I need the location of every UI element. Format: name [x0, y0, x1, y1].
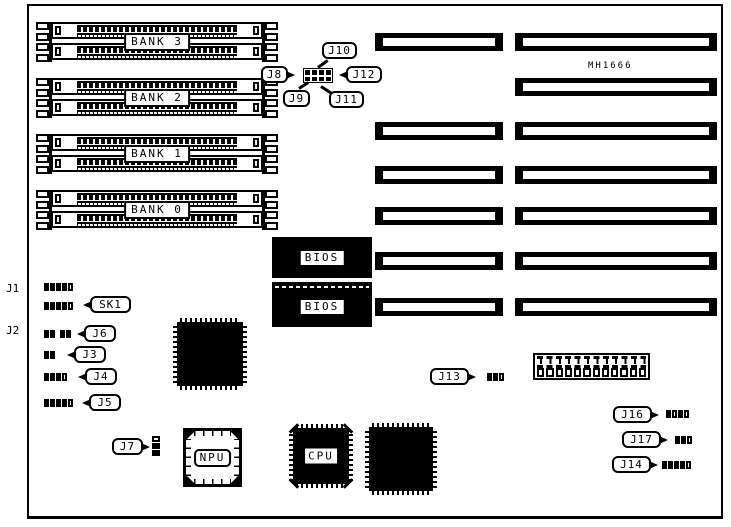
memory-bank-3: BANK 3 — [36, 22, 278, 62]
bank-end-blocks — [36, 22, 49, 62]
callout-j4: J4 — [85, 368, 117, 385]
connector-pin — [546, 368, 553, 377]
pin-jumpered — [44, 302, 49, 310]
decor-mark — [523, 127, 709, 135]
decor-mark — [36, 155, 49, 163]
bank-end-blocks — [265, 22, 278, 62]
connector-pin — [556, 368, 563, 377]
pin-jumpered — [44, 351, 49, 359]
decor-mark — [383, 303, 495, 311]
power-connector — [533, 353, 650, 380]
connector-pin — [611, 368, 618, 377]
decor-mark — [265, 33, 278, 41]
callout-j17: J17 — [622, 431, 661, 448]
connector-pin — [565, 368, 572, 377]
decor-mark — [194, 431, 231, 436]
decor-mark — [296, 484, 346, 488]
decor-mark — [289, 431, 293, 481]
bank-end-blocks — [36, 134, 49, 174]
decor-mark — [383, 38, 495, 46]
connector-pin — [630, 368, 637, 377]
jumper-j6-pins — [44, 330, 55, 338]
decor-mark — [265, 166, 278, 174]
decor-mark — [523, 83, 709, 91]
decor-mark — [36, 201, 49, 209]
edge-label-j1: J1 — [6, 282, 19, 295]
pin-jumpered — [675, 436, 680, 444]
decor-mark — [180, 318, 240, 322]
bios-label: BIOS — [301, 300, 344, 314]
expansion-slot — [375, 298, 503, 316]
jumper-j7-pins — [152, 436, 160, 456]
decor-mark — [77, 56, 237, 58]
pin-jumpered — [50, 373, 55, 381]
pin-jumpered — [152, 443, 160, 449]
jumper-pin-pair — [319, 77, 324, 82]
decor-mark — [265, 211, 278, 219]
expansion-slot — [375, 252, 503, 270]
decor-mark — [194, 479, 231, 484]
decor-mark — [265, 222, 278, 230]
decor-mark — [186, 439, 191, 476]
pin-jumpered — [678, 410, 683, 418]
callout-j7: J7 — [112, 438, 143, 455]
decor-mark — [523, 303, 709, 311]
pin-jumpered — [44, 399, 49, 407]
pin-jumpered — [50, 351, 55, 359]
bios-chip: BIOS — [272, 282, 372, 327]
decor-mark — [265, 89, 278, 97]
cpu-chip: CPU — [293, 428, 349, 484]
pin-jumpered — [50, 283, 55, 291]
expansion-slot — [515, 78, 717, 96]
bios-chip: BIOS — [272, 237, 372, 278]
pin-open — [672, 410, 677, 418]
pin-jumpered — [44, 373, 49, 381]
bank-label: BANK 3 — [124, 33, 190, 51]
pin-jumpered — [62, 302, 67, 310]
pin-jumpered — [680, 461, 685, 469]
asic-chip — [177, 322, 243, 386]
decor-mark — [523, 212, 709, 220]
decor-mark — [36, 110, 49, 118]
asic-chip — [369, 427, 433, 491]
decor-mark — [433, 430, 437, 488]
callout-j3: J3 — [74, 346, 106, 363]
expansion-slot — [375, 166, 503, 184]
jumper-sk1-pins — [44, 302, 73, 310]
decor-mark — [296, 424, 346, 428]
expansion-slot — [375, 33, 503, 51]
decor-mark — [180, 386, 240, 390]
jumper-pin-pair — [319, 70, 324, 75]
decor-mark — [173, 325, 177, 383]
pin-jumpered — [50, 302, 55, 310]
pin-jumpered — [62, 399, 67, 407]
decor-mark — [36, 22, 49, 30]
decor-mark — [265, 201, 278, 209]
expansion-slot — [515, 207, 717, 225]
expansion-slot — [515, 122, 717, 140]
pin-jumpered — [50, 330, 55, 338]
jumper-pin-pair — [326, 70, 331, 75]
pin-jumpered — [62, 283, 67, 291]
memory-bank-0: BANK 0 — [36, 190, 278, 230]
jumper-j1-pins — [44, 283, 73, 291]
decor-mark — [383, 127, 495, 135]
decor-mark — [36, 33, 49, 41]
decor-mark — [265, 145, 278, 153]
decor-mark — [36, 145, 49, 153]
decor-mark — [77, 168, 237, 170]
decor-mark — [265, 99, 278, 107]
jumper-pin-pair — [312, 70, 317, 75]
jumper-pin-pair — [305, 77, 310, 82]
decor-mark — [372, 423, 430, 427]
connector-pin — [639, 368, 646, 377]
decor-mark — [365, 430, 369, 488]
decor-mark — [265, 134, 278, 142]
connector-pin-caps — [537, 356, 646, 364]
pin-jumpered — [681, 436, 686, 444]
pin-jumpered — [56, 283, 61, 291]
pin-open — [687, 436, 692, 444]
bios-label: BIOS — [301, 251, 344, 265]
connector-pin — [537, 368, 544, 377]
callout-j11: J11 — [329, 91, 364, 108]
callout-sk1: SK1 — [90, 296, 131, 313]
pin-jumpered — [56, 302, 61, 310]
bank-label: BANK 0 — [124, 201, 190, 219]
pin-open — [68, 302, 73, 310]
decor-mark — [234, 439, 239, 476]
pin-jumpered — [674, 461, 679, 469]
pin-open — [68, 283, 73, 291]
callout-j6: J6 — [84, 325, 116, 342]
jumper-j13-pins — [487, 373, 504, 381]
decor-mark — [77, 25, 237, 32]
jumper-pin-pair — [305, 70, 310, 75]
decor-mark — [523, 171, 709, 179]
jumper-j5-pins — [44, 399, 73, 407]
expansion-slot — [375, 207, 503, 225]
bank-end-blocks — [265, 190, 278, 230]
pin-jumpered — [662, 461, 667, 469]
pin-jumpered — [668, 461, 673, 469]
decor-mark — [36, 54, 49, 62]
callout-j16: J16 — [613, 406, 652, 423]
decor-mark — [523, 257, 709, 265]
pin-open — [686, 461, 691, 469]
bios-window-line — [275, 286, 369, 288]
memory-bank-2: BANK 2 — [36, 78, 278, 118]
decor-mark — [77, 224, 237, 226]
edge-label-j2: J2 — [6, 324, 19, 337]
decor-mark — [383, 212, 495, 220]
pin-jumpered — [666, 410, 671, 418]
decor-mark — [36, 89, 49, 97]
callout-j5: J5 — [89, 394, 121, 411]
decor-mark — [36, 43, 49, 51]
pin-jumpered — [56, 399, 61, 407]
callout-j10: J10 — [322, 42, 357, 59]
connector-pin — [620, 368, 627, 377]
pin-jumpered — [50, 399, 55, 407]
callout-j9: J9 — [283, 90, 310, 107]
bank-end-blocks — [36, 190, 49, 230]
bank-label: BANK 1 — [124, 145, 190, 163]
callout-j12: J12 — [346, 66, 382, 83]
decor-mark — [523, 38, 709, 46]
decor-mark — [383, 257, 495, 265]
decor-mark — [36, 134, 49, 142]
jumper-pin-pair — [312, 77, 317, 82]
jumper-j4-pins — [44, 373, 67, 381]
connector-pin — [593, 368, 600, 377]
decor-mark — [77, 112, 237, 114]
expansion-slot — [515, 252, 717, 270]
connector-pin — [602, 368, 609, 377]
decor-mark — [372, 491, 430, 495]
decor-mark — [243, 325, 247, 383]
decor-mark — [77, 137, 237, 144]
decor-mark — [36, 99, 49, 107]
callout-j14: J14 — [612, 456, 651, 473]
decor-mark — [265, 155, 278, 163]
decor-mark — [230, 475, 239, 484]
npu-socket: NPU — [183, 428, 242, 487]
jumper-j3-pins — [44, 351, 55, 359]
decor-mark — [265, 190, 278, 198]
expansion-slot — [515, 166, 717, 184]
bank-label: BANK 2 — [124, 89, 190, 107]
pin-open — [62, 373, 67, 381]
motherboard-diagram: J1 J2 BANK 3 BANK 2 BANK 1 BANK 0 J8 J10 — [0, 0, 731, 527]
connector-pin — [574, 368, 581, 377]
model-number: MH1666 — [588, 61, 633, 71]
decor-mark — [265, 54, 278, 62]
pin-open — [684, 410, 689, 418]
decor-mark — [36, 222, 49, 230]
npu-label: NPU — [194, 449, 232, 467]
decor-mark — [265, 110, 278, 118]
jumper-pin-pair — [326, 77, 331, 82]
memory-bank-1: BANK 1 — [36, 134, 278, 174]
decor-mark — [383, 171, 495, 179]
jumper-j6-pins — [60, 330, 71, 338]
bank-end-blocks — [265, 78, 278, 118]
connector-pin — [583, 368, 590, 377]
pin-jumpered — [56, 373, 61, 381]
cpu-label: CPU — [305, 449, 337, 464]
decor-mark — [349, 431, 353, 481]
pin-jumpered — [487, 373, 492, 381]
expansion-slot — [515, 298, 717, 316]
bank-end-blocks — [36, 78, 49, 118]
decor-mark — [36, 166, 49, 174]
pin-jumpered — [44, 283, 49, 291]
jumper-j16-pins — [666, 410, 689, 418]
decor-mark — [36, 211, 49, 219]
pin-open — [499, 373, 504, 381]
decor-mark — [36, 78, 49, 86]
decor-mark — [36, 190, 49, 198]
callout-j8: J8 — [261, 66, 288, 83]
pin-jumpered — [152, 450, 160, 456]
callout-j13: J13 — [430, 368, 469, 385]
expansion-slot — [375, 122, 503, 140]
jumper-j17-pins — [675, 436, 692, 444]
expansion-slot — [515, 33, 717, 51]
decor-mark — [265, 43, 278, 51]
bank-end-blocks — [265, 134, 278, 174]
decor-mark — [77, 81, 237, 88]
pin-jumpered — [66, 330, 71, 338]
pin-jumpered — [60, 330, 65, 338]
pin-open — [68, 399, 73, 407]
pin-open — [152, 436, 160, 442]
pin-jumpered — [44, 330, 49, 338]
decor-mark — [265, 22, 278, 30]
decor-mark — [77, 193, 237, 200]
jumper-j14-pins — [662, 461, 691, 469]
pin-jumpered — [493, 373, 498, 381]
power-connector-pin-row — [537, 368, 646, 377]
